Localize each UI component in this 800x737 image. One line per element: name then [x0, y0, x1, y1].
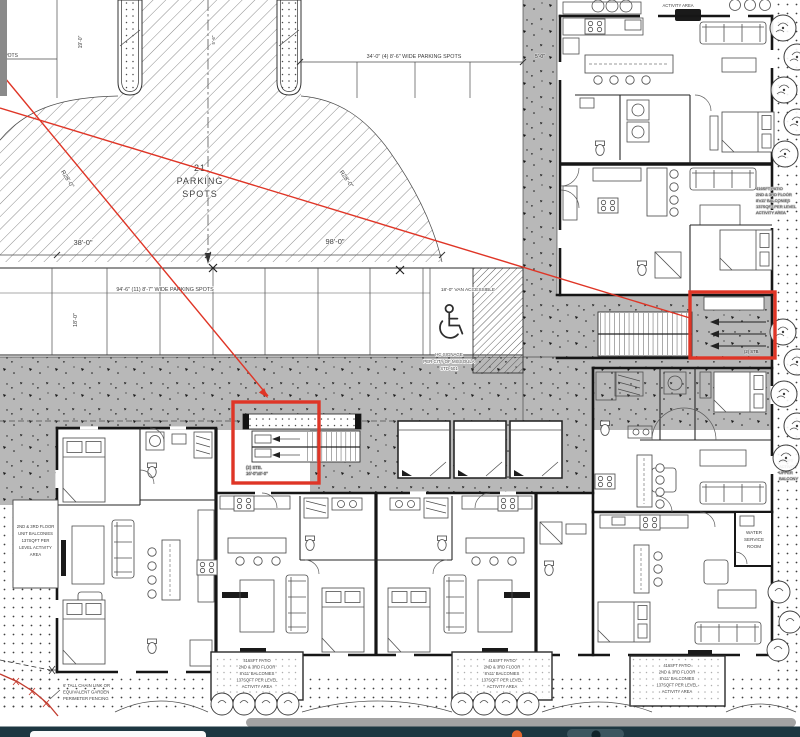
horizontal-scrollbar-thumb[interactable]	[246, 718, 796, 727]
row-dim-label: 94'-6" (11) 8'-7" WIDE PARKING SPOTS	[116, 287, 214, 293]
fence-note-2: EQUIVALENT GARDEN	[63, 690, 109, 695]
patio1-note-5: ACTIVITY AREA	[242, 684, 273, 689]
upper-balcony-note-5: ACTIVITY AREA	[756, 210, 786, 215]
hc-note-line3: STD-501	[440, 366, 458, 371]
left-edge-panel-strip	[0, 0, 7, 96]
left-balc-1: 2ND & 3RD FLOOR	[17, 524, 54, 529]
patio2-note-4: 137SQFT PER LEVEL	[481, 678, 523, 683]
planting-island-2	[277, 0, 301, 95]
patio2-note-2: 2ND & 3RD FLOOR	[484, 665, 521, 670]
canopy-3	[510, 421, 562, 478]
right-edge-note-4: BALCONY	[779, 476, 798, 481]
activity-area-top-label: ACTIVITY AREA	[662, 3, 693, 8]
left-stair-label-1: (2) STB.	[246, 465, 262, 470]
fence-note-3: PERIMETER FENCING	[63, 696, 109, 701]
parking-count-line2: PARKING	[177, 176, 224, 186]
upper-balcony-note-3: 8'x11' BALCONIES	[756, 198, 790, 203]
dim-5ft-label: 5'-0"	[535, 54, 545, 60]
water-room-label-2: SERVICE	[744, 537, 764, 542]
canopy-1	[398, 421, 450, 478]
left-balc-2: UNIT BALCONIES	[18, 531, 53, 536]
right-stair-label: (2) STB.	[744, 349, 760, 354]
window-edge-peek[interactable]	[30, 731, 206, 737]
patio1-note-2: 2ND & 3RD FLOOR	[239, 665, 276, 670]
dim-98-label: 98'-0"	[325, 237, 344, 246]
patio2-note-1: 416SFT PATIO	[488, 658, 515, 663]
patio1-note-4: 137SQFT PER LEVEL	[236, 678, 278, 683]
patio3-note-4: 137SQFT PER LEVEL	[656, 683, 698, 688]
left-stair-label-2: 16'-0"x8'-0"	[246, 471, 268, 476]
van-label: 18'-0" VAN ACCESSIBLE	[441, 287, 495, 293]
patio1-note-3: 8'x11' BALCONIES	[240, 671, 275, 676]
patio-3: 416SFT PATIO 2ND & 3RD FLOOR 8'x11' BALC…	[630, 656, 725, 706]
hc-access-aisle	[473, 268, 523, 373]
patio-2: 416SFT PATIO 2ND & 3RD FLOOR 8'x11' BALC…	[452, 652, 552, 700]
patio2-note-5: ACTIVITY AREA	[487, 684, 518, 689]
patio3-note-3: 8'x11' BALCONIES	[660, 676, 695, 681]
hc-note-line1: HC SIGNAGE	[435, 352, 463, 357]
canopy-structures	[398, 421, 562, 478]
water-service-room: WATER SERVICE ROOM	[735, 512, 772, 566]
water-room-label-3: ROOM	[747, 544, 761, 549]
dim-38-label: 38'-0"	[73, 238, 92, 247]
upper-balcony-note-4: 137SQFT PER LEVEL	[756, 204, 797, 209]
patio1-note-1: 416SFT PATIO	[243, 658, 270, 663]
left-balc-5: AREA	[30, 552, 42, 557]
planting-island-1	[118, 0, 142, 95]
patio3-note-5: ACTIVITY AREA	[662, 689, 693, 694]
left-balc-3: 137SQFT PER	[22, 538, 50, 543]
upper-balcony-note-2: 2ND & 3RD FLOOR	[756, 192, 792, 197]
dim-top-label: 34'-0" (4) 8'-6" WIDE PARKING SPOTS	[367, 54, 462, 60]
dim-5-6-label: 5'-6"	[211, 35, 216, 44]
left-balc-4: LEVEL ACTIVITY	[19, 545, 52, 550]
left-balcony-note-box: 2ND & 3RD FLOOR UNIT BALCONIES 137SQFT P…	[13, 500, 58, 588]
floor-plan-canvas: 21 PARKING SPOTS 34'-0" (4) 8'-6" WIDE P…	[0, 0, 800, 737]
fence-note-1: 6' TALL CHAIN LINK OR	[63, 683, 110, 688]
patio3-note-1: 416SFT PATIO	[663, 663, 690, 668]
patio3-note-2: 2ND & 3RD FLOOR	[659, 670, 696, 675]
taskbar	[0, 727, 800, 737]
parking-count-line3: SPOTS	[182, 189, 218, 199]
dim-19ft-label: 19'-0"	[78, 35, 84, 48]
patio2-note-3: 8'x11' BALCONIES	[485, 671, 520, 676]
upper-balcony-note-1: 416SFT PATIO	[756, 186, 783, 191]
water-room-label-1: WATER	[746, 530, 763, 535]
canopy-2	[454, 421, 506, 478]
row-depth-label: 18'-0"	[73, 313, 79, 327]
hc-note-line2: PER CITY OF MISSOULA	[423, 359, 474, 364]
